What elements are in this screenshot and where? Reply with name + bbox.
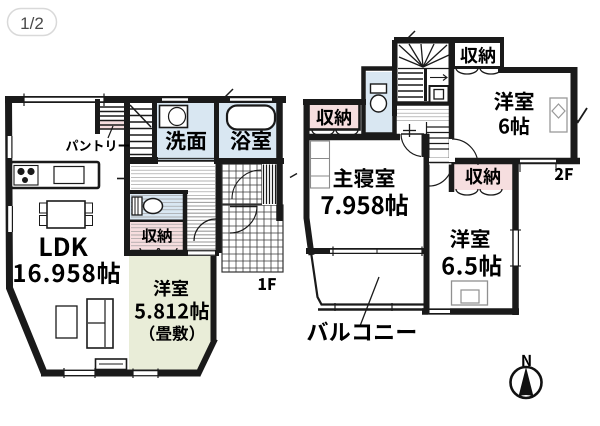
svg-text:1/2: 1/2 xyxy=(20,14,44,33)
